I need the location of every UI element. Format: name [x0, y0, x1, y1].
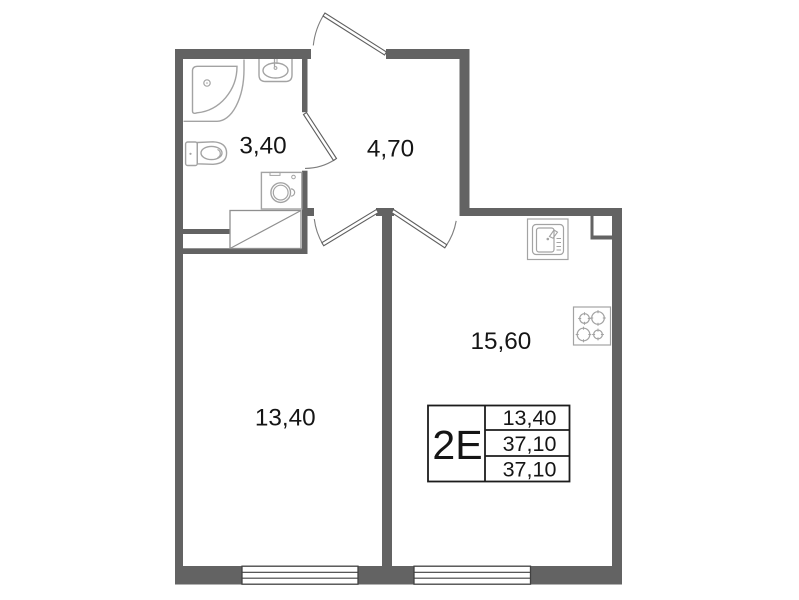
svg-text:13,40: 13,40 — [503, 406, 557, 430]
svg-text:4,70: 4,70 — [367, 136, 414, 163]
svg-text:37,10: 37,10 — [503, 458, 557, 482]
svg-text:2E: 2E — [432, 422, 482, 468]
svg-text:15,60: 15,60 — [470, 328, 531, 355]
svg-text:13,40: 13,40 — [255, 405, 316, 432]
svg-text:3,40: 3,40 — [239, 133, 286, 160]
svg-text:37,10: 37,10 — [503, 432, 557, 456]
